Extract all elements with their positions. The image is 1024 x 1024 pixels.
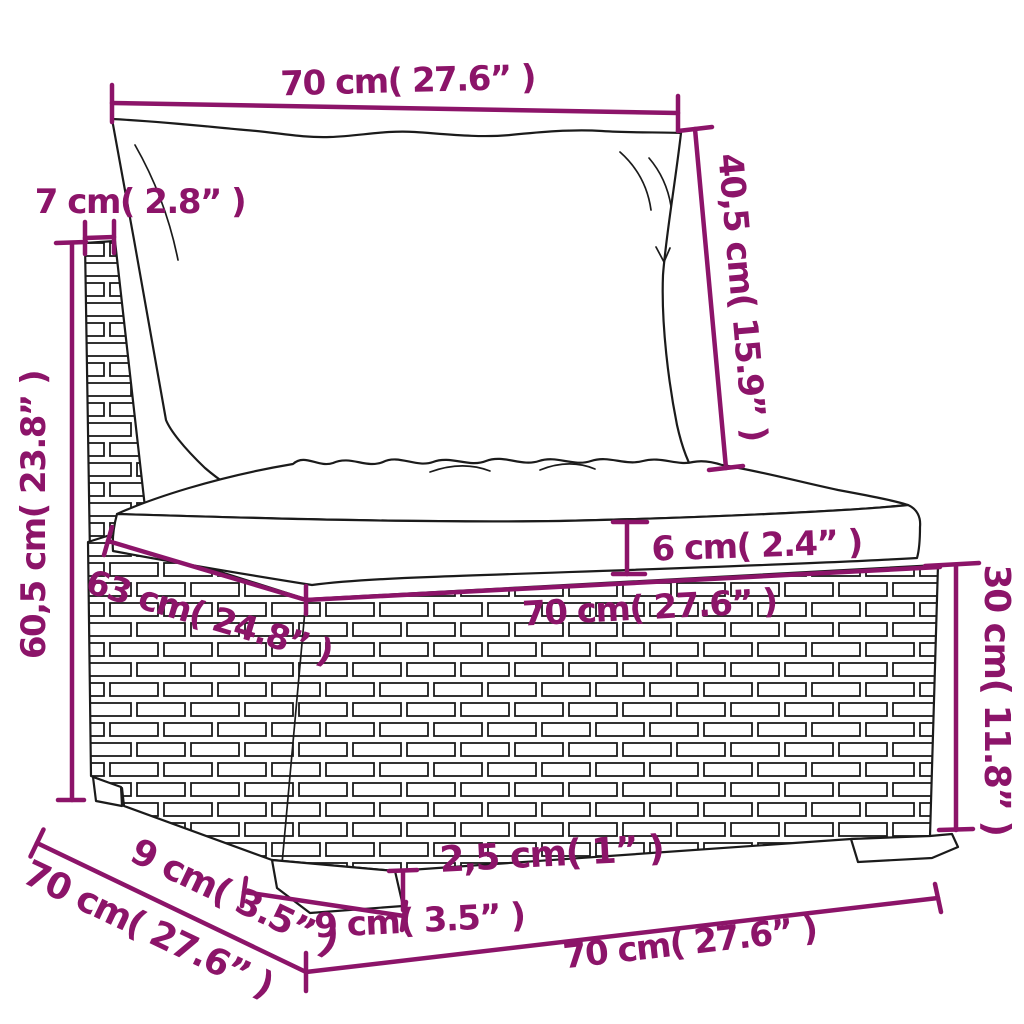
dim-total-height: 60,5 cm( 23.8” ) bbox=[14, 242, 86, 800]
dim-base-height: 30 cm( 11.8” ) bbox=[925, 563, 1017, 835]
dim-bottom-width-label: 70 cm( 27.6” ) bbox=[561, 909, 819, 978]
dim-back-cushion-width: 70 cm( 27.6” ) bbox=[112, 58, 678, 131]
sofa-dimension-drawing: 70 cm( 27.6” ) 7 cm( 2.8” ) 60,5 cm( 23.… bbox=[0, 0, 1024, 1024]
dimension-diagram: 70 cm( 27.6” ) 7 cm( 2.8” ) 60,5 cm( 23.… bbox=[0, 0, 1024, 1024]
dim-back-panel-thickness-label: 7 cm( 2.8” ) bbox=[35, 182, 245, 222]
dim-base-height-label: 30 cm( 11.8” ) bbox=[976, 565, 1017, 836]
rattan-base bbox=[88, 536, 938, 871]
dim-back-cushion-width-label: 70 cm( 27.6” ) bbox=[280, 58, 536, 105]
front-right-leg bbox=[851, 834, 958, 862]
dim-seat-cushion-thickness-label: 6 cm( 2.4” ) bbox=[651, 522, 863, 569]
sofa-artwork bbox=[85, 119, 958, 913]
dim-back-cushion-height: 40,5 cm( 15.9” ) bbox=[678, 127, 774, 470]
dim-total-height-label: 60,5 cm( 23.8” ) bbox=[14, 371, 54, 659]
